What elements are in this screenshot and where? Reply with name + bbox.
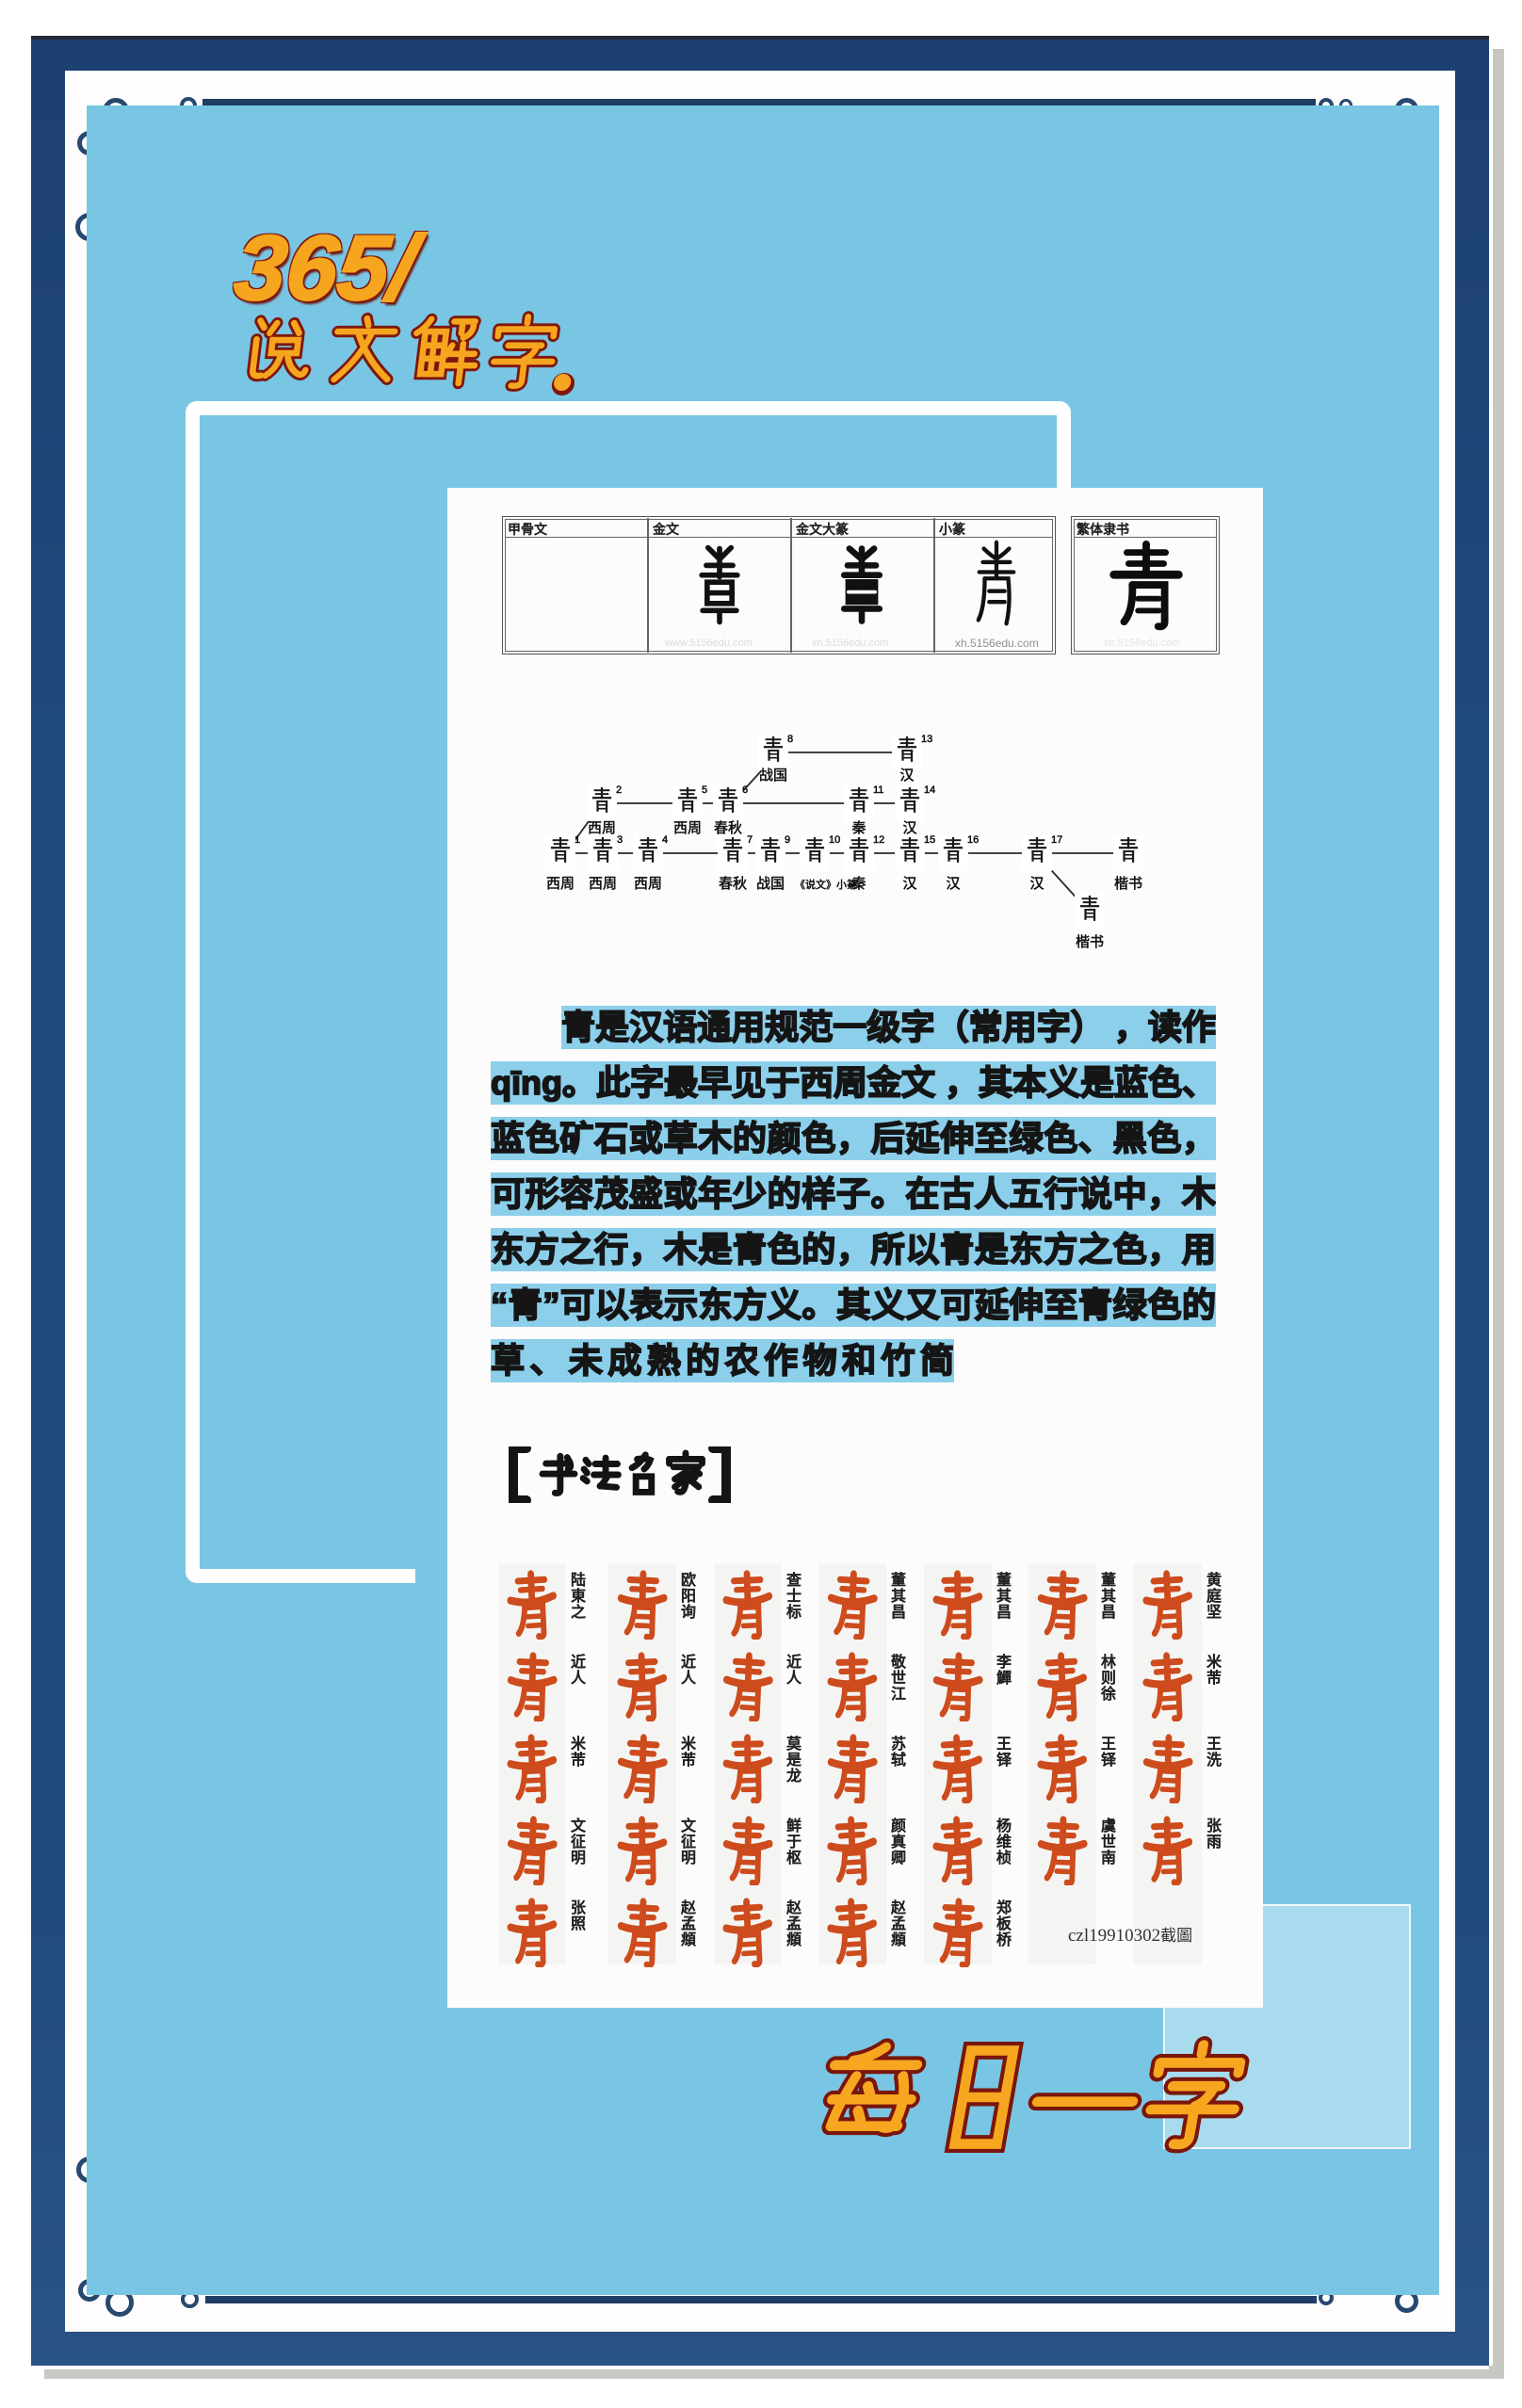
svg-text:汉: 汉 [899,768,914,784]
svg-text:西周: 西周 [589,876,617,892]
svg-text:6: 6 [742,784,748,796]
svg-text:战国: 战国 [756,876,785,892]
svg-text:12: 12 [873,834,884,846]
svg-text:西周: 西周 [546,876,575,892]
svg-text:10: 10 [829,834,840,846]
svg-text:4: 4 [662,834,668,846]
svg-text:汉: 汉 [1029,876,1044,892]
svg-text:西周: 西周 [588,820,616,836]
svg-text:16: 16 [967,834,979,846]
svg-text:秦: 秦 [851,820,866,836]
svg-text:汉: 汉 [902,876,916,892]
svg-text:战国: 战国 [759,768,787,784]
svg-text:西周: 西周 [673,820,702,836]
svg-text:11: 11 [873,784,883,796]
svg-text:8: 8 [787,734,793,745]
svg-text:春秋: 春秋 [714,820,742,836]
svg-text:汉: 汉 [946,876,960,892]
svg-text:13: 13 [921,734,932,745]
svg-text:春秋: 春秋 [719,876,747,892]
svg-text:楷书: 楷书 [1076,934,1104,950]
svg-text:1: 1 [575,834,580,846]
svg-text:楷书: 楷书 [1114,876,1142,892]
svg-text:7: 7 [747,834,753,846]
svg-text:西周: 西周 [634,876,662,892]
svg-text:《说文》小篆: 《说文》小篆 [795,878,857,891]
svg-text:14: 14 [924,784,935,796]
svg-text:15: 15 [924,834,935,846]
svg-text:2: 2 [616,784,622,796]
svg-text:3: 3 [617,834,623,846]
svg-text:5: 5 [702,784,707,796]
svg-text:17: 17 [1051,834,1062,846]
svg-text:汉: 汉 [902,820,916,836]
svg-text:9: 9 [785,834,790,846]
svg-text:秦: 秦 [851,876,866,892]
